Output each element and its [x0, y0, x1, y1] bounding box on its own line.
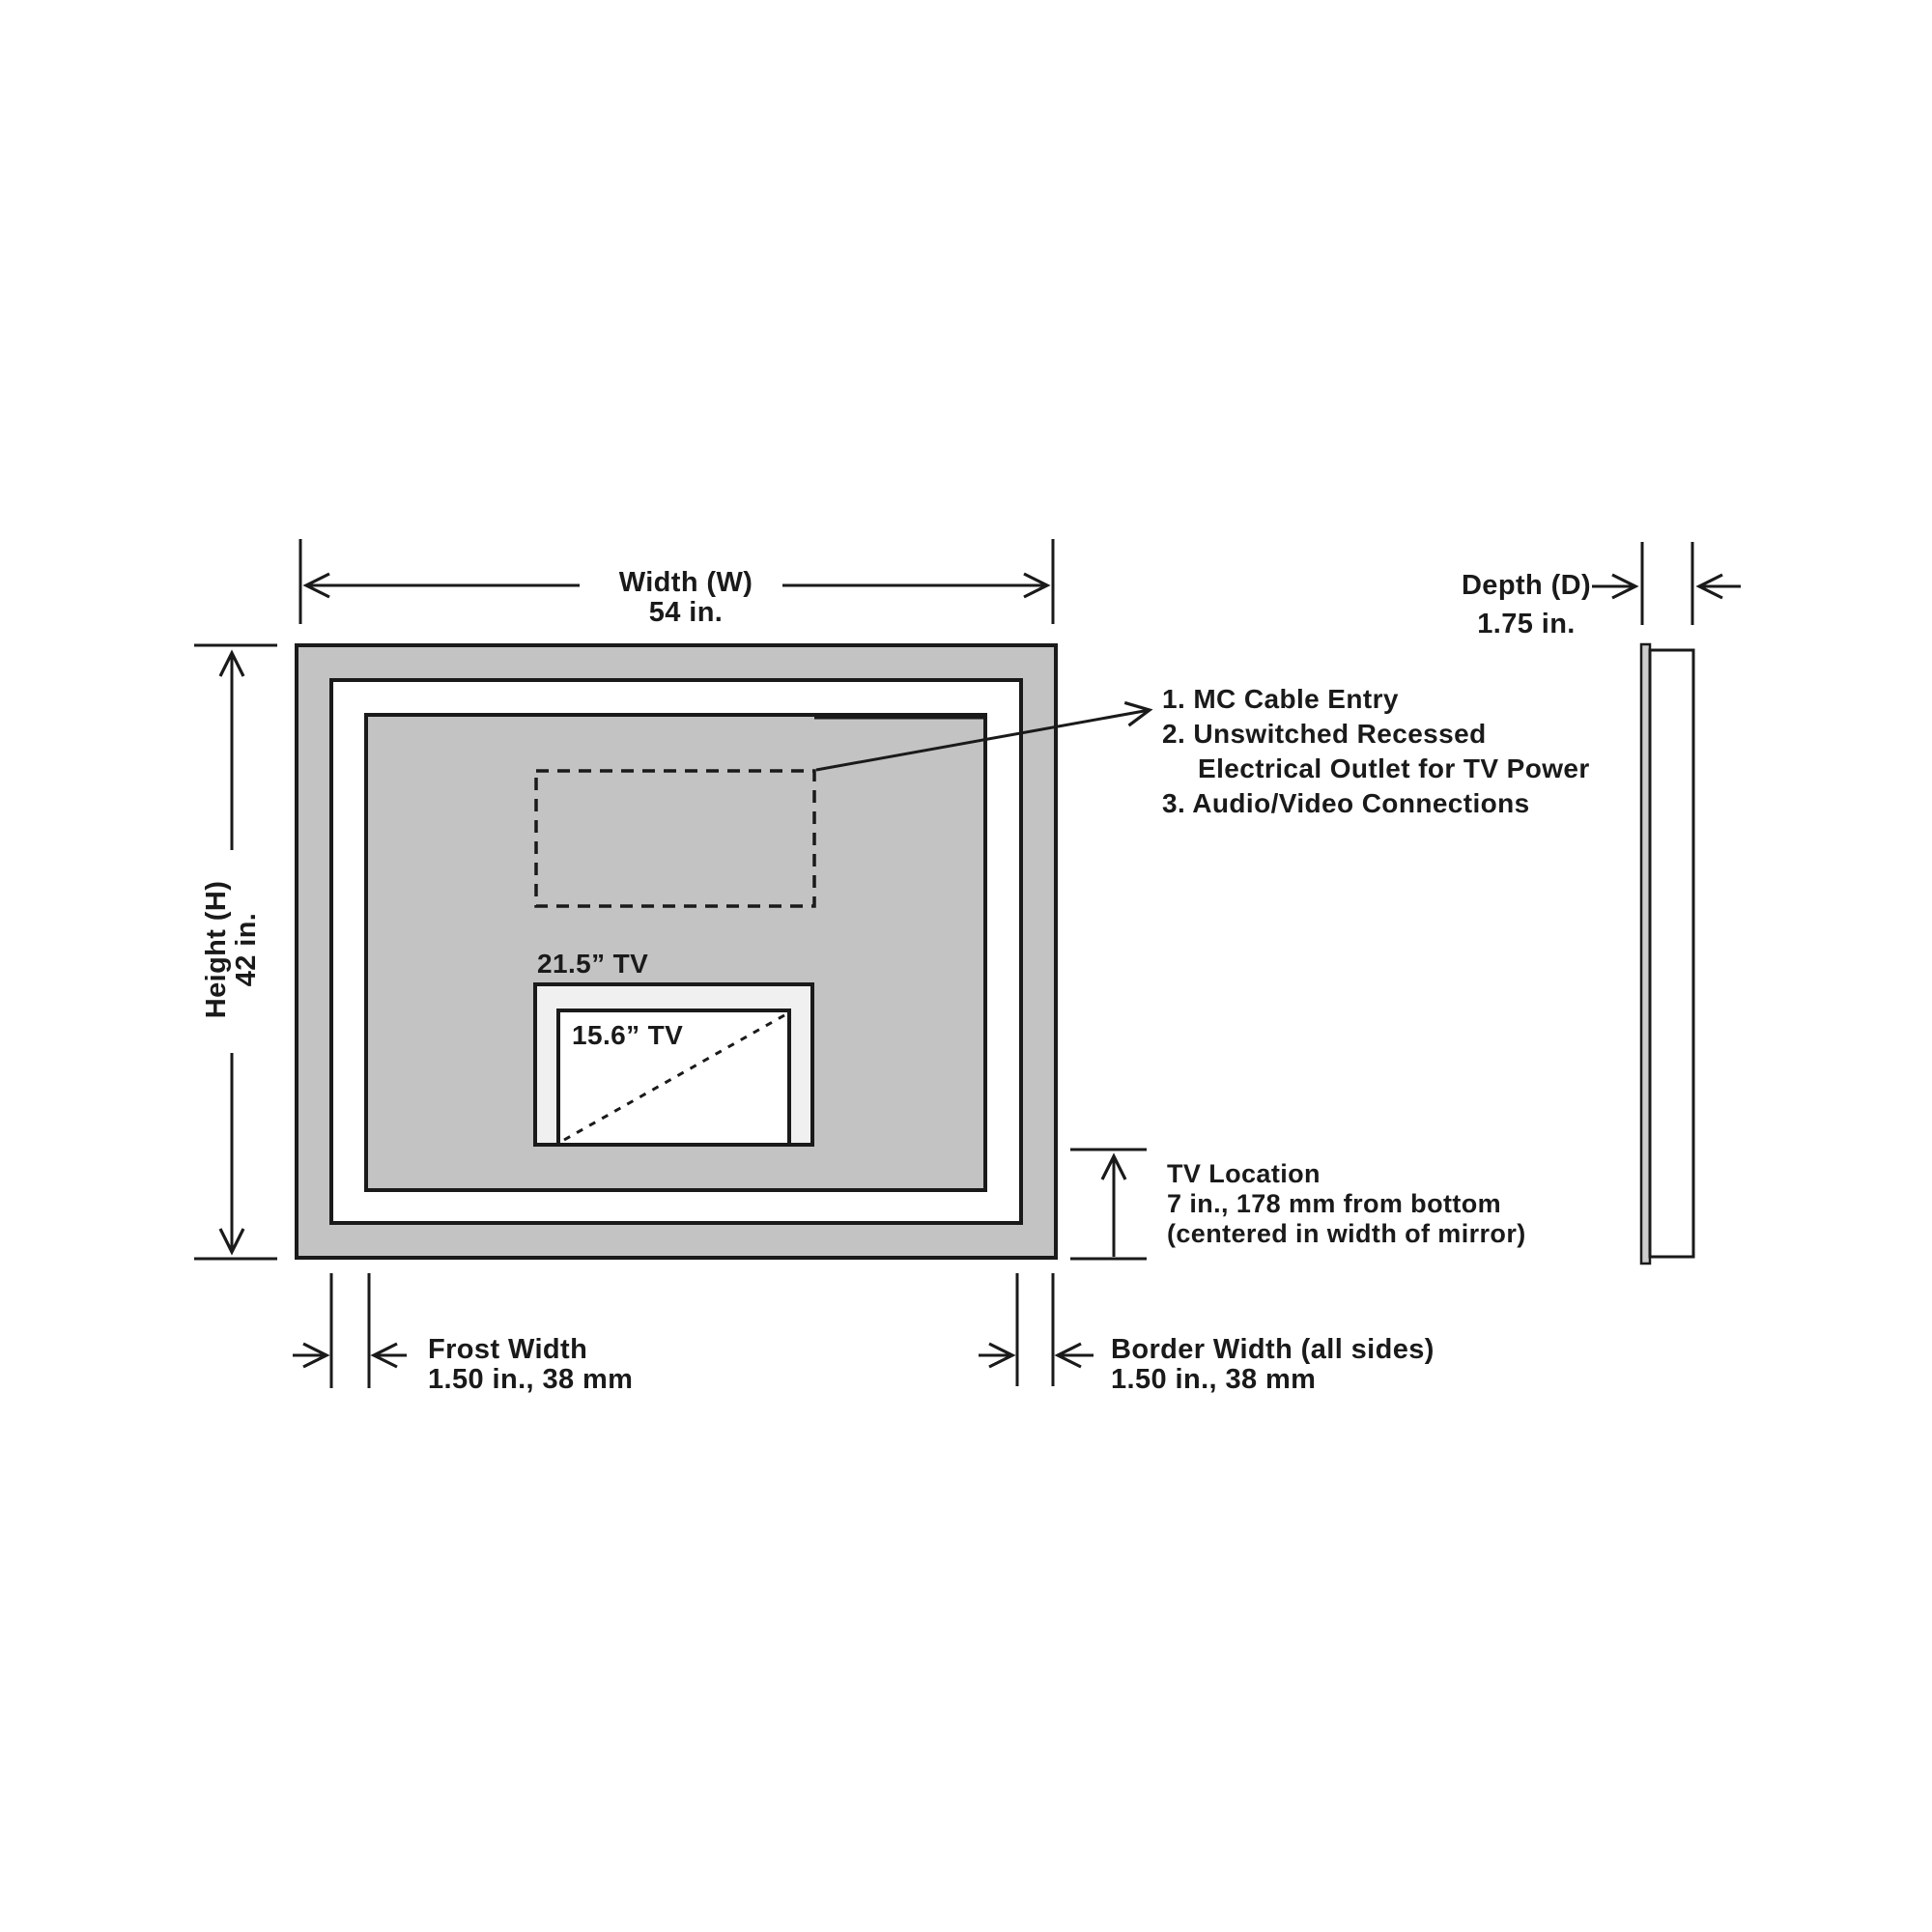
height-dimension-label: Height (H) 42 in.: [202, 834, 262, 1065]
tv-location-title: TV Location: [1167, 1159, 1526, 1189]
front-view: [297, 645, 1056, 1258]
width-value-text: 54 in.: [570, 598, 802, 628]
width-dimension-label: Width (W) 54 in.: [570, 568, 802, 628]
diagram-canvas: Width (W) 54 in. Height (H) 42 in. 21.5”…: [0, 0, 1932, 1932]
frost-width-title: Frost Width: [428, 1335, 633, 1365]
side-view: [1592, 542, 1741, 1264]
technical-drawing: [0, 0, 1932, 1932]
callout-item-2: 2. Unswitched Recessed: [1162, 717, 1590, 752]
width-label-text: Width (W): [570, 568, 802, 598]
frost-width-label: Frost Width 1.50 in., 38 mm: [428, 1335, 633, 1395]
side-housing: [1650, 650, 1693, 1257]
tv-location-value: 7 in., 178 mm from bottom: [1167, 1189, 1526, 1219]
border-dimension: [979, 1273, 1094, 1386]
height-value-text: 42 in.: [232, 834, 262, 1065]
tv-location-label: TV Location 7 in., 178 mm from bottom (c…: [1167, 1159, 1526, 1249]
callout-item-3: 3. Audio/Video Connections: [1162, 786, 1590, 821]
depth-value-text: 1.75 in.: [1430, 605, 1623, 643]
border-width-title: Border Width (all sides): [1111, 1335, 1435, 1365]
tv-location-note: (centered in width of mirror): [1167, 1219, 1526, 1249]
frost-dimension: [293, 1273, 407, 1388]
callout-item-1: 1. MC Cable Entry: [1162, 682, 1590, 717]
tv-location-dimension: [1070, 1150, 1147, 1259]
tv-outer-size-label: 21.5” TV: [537, 949, 648, 979]
depth-label-text: Depth (D): [1430, 566, 1623, 605]
callout-item-2-cont: Electrical Outlet for TV Power: [1162, 752, 1590, 786]
frost-width-value: 1.50 in., 38 mm: [428, 1365, 633, 1395]
tv-inner-size-label: 15.6” TV: [572, 1020, 683, 1050]
callout-list: 1. MC Cable Entry 2. Unswitched Recessed…: [1162, 682, 1590, 821]
border-width-label: Border Width (all sides) 1.50 in., 38 mm: [1111, 1335, 1435, 1395]
depth-dimension-label: Depth (D) 1.75 in.: [1430, 566, 1623, 643]
border-width-value: 1.50 in., 38 mm: [1111, 1365, 1435, 1395]
height-label-text: Height (H): [202, 834, 232, 1065]
